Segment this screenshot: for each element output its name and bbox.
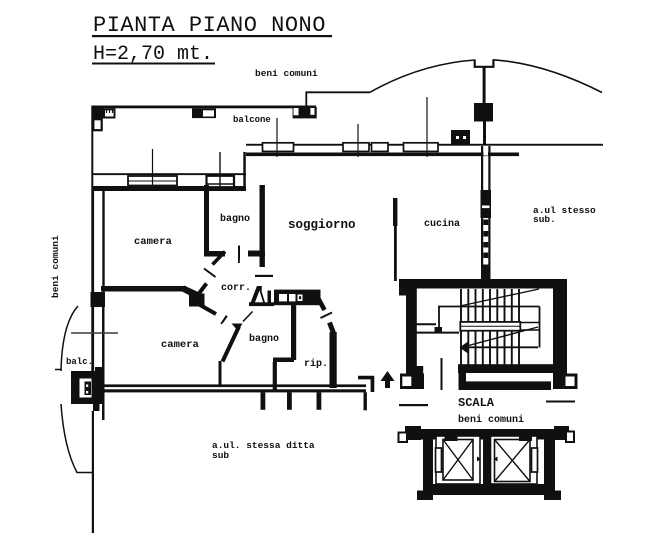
svg-text:corr.: corr. [221, 283, 251, 294]
svg-text:camera: camera [134, 236, 173, 248]
svg-text:balcone: balcone [233, 115, 271, 125]
svg-text:beni comuni: beni comuni [458, 414, 524, 426]
svg-text:balc.: balc. [66, 357, 93, 367]
svg-text:PIANTA PIANO NONO: PIANTA PIANO NONO [93, 13, 326, 38]
svg-text:rip.: rip. [304, 358, 328, 370]
svg-text:cucina: cucina [424, 218, 460, 230]
svg-text:bagno: bagno [220, 213, 250, 225]
svg-text:beni comuni: beni comuni [50, 235, 61, 298]
svg-text:beni comuni: beni comuni [255, 68, 318, 79]
svg-text:SCALA: SCALA [458, 396, 495, 410]
svg-text:bagno: bagno [249, 333, 279, 345]
svg-text:camera: camera [161, 339, 200, 351]
svg-text:soggiorno: soggiorno [288, 218, 356, 232]
svg-text:sub: sub [212, 450, 229, 461]
svg-text:sub.: sub. [533, 214, 556, 225]
